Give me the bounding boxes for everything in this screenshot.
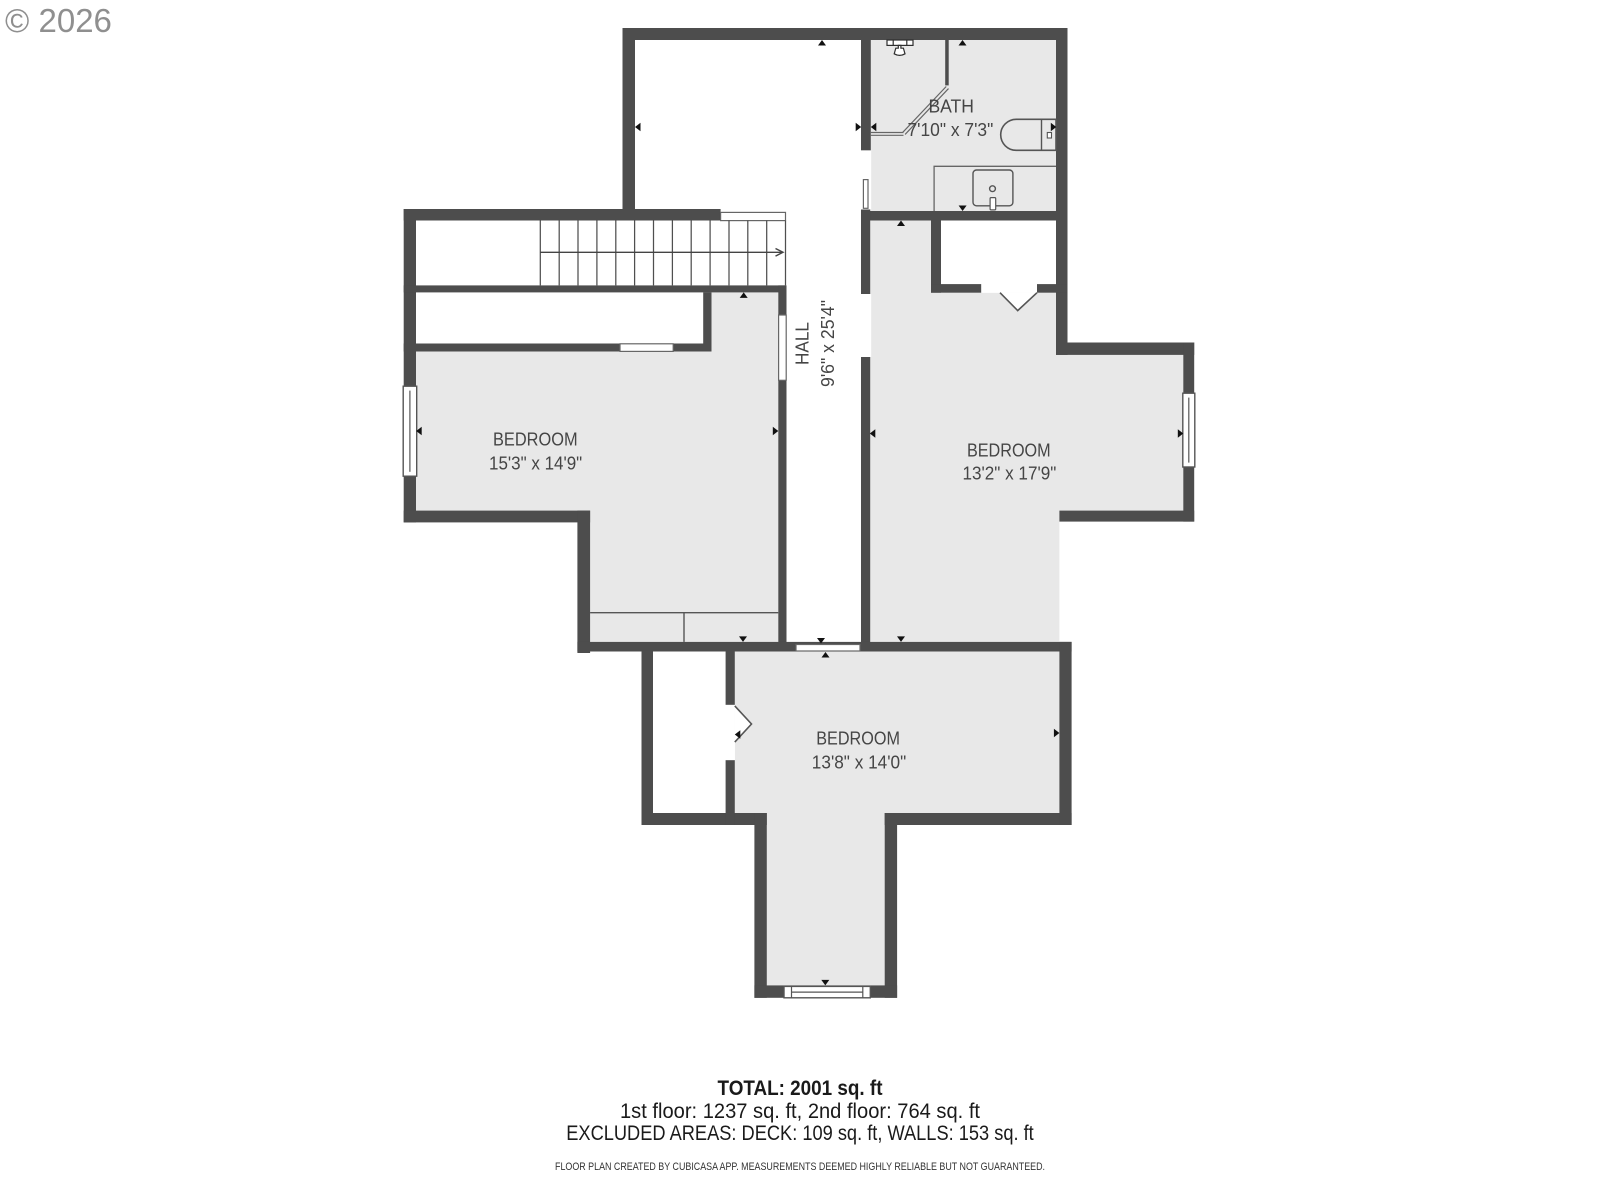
- svg-text:13'8" x 14'0": 13'8" x 14'0": [812, 752, 906, 772]
- svg-text:BATH: BATH: [928, 96, 974, 117]
- svg-text:15'3" x 14'9": 15'3" x 14'9": [489, 454, 582, 474]
- svg-text:TOTAL: 2001 sq. ft: TOTAL: 2001 sq. ft: [718, 1077, 883, 1100]
- svg-text:9'6" x 25'4": 9'6" x 25'4": [818, 300, 838, 387]
- svg-text:HALL: HALL: [792, 322, 813, 365]
- svg-text:7'10" x 7'3": 7'10" x 7'3": [908, 120, 994, 140]
- svg-text:BEDROOM: BEDROOM: [816, 727, 900, 748]
- svg-text:13'2" x 17'9": 13'2" x 17'9": [963, 464, 1057, 484]
- svg-text:© 2026: © 2026: [5, 2, 112, 39]
- svg-text:BEDROOM: BEDROOM: [493, 429, 578, 450]
- svg-text:1st floor: 1237 sq. ft, 2nd fl: 1st floor: 1237 sq. ft, 2nd floor: 764 s…: [620, 1100, 980, 1123]
- svg-text:EXCLUDED AREAS: DECK: 109 sq.: EXCLUDED AREAS: DECK: 109 sq. ft, WALLS:…: [566, 1122, 1034, 1145]
- svg-text:FLOOR PLAN CREATED BY CUBICASA: FLOOR PLAN CREATED BY CUBICASA APP. MEAS…: [555, 1161, 1045, 1173]
- svg-text:BEDROOM: BEDROOM: [967, 440, 1051, 461]
